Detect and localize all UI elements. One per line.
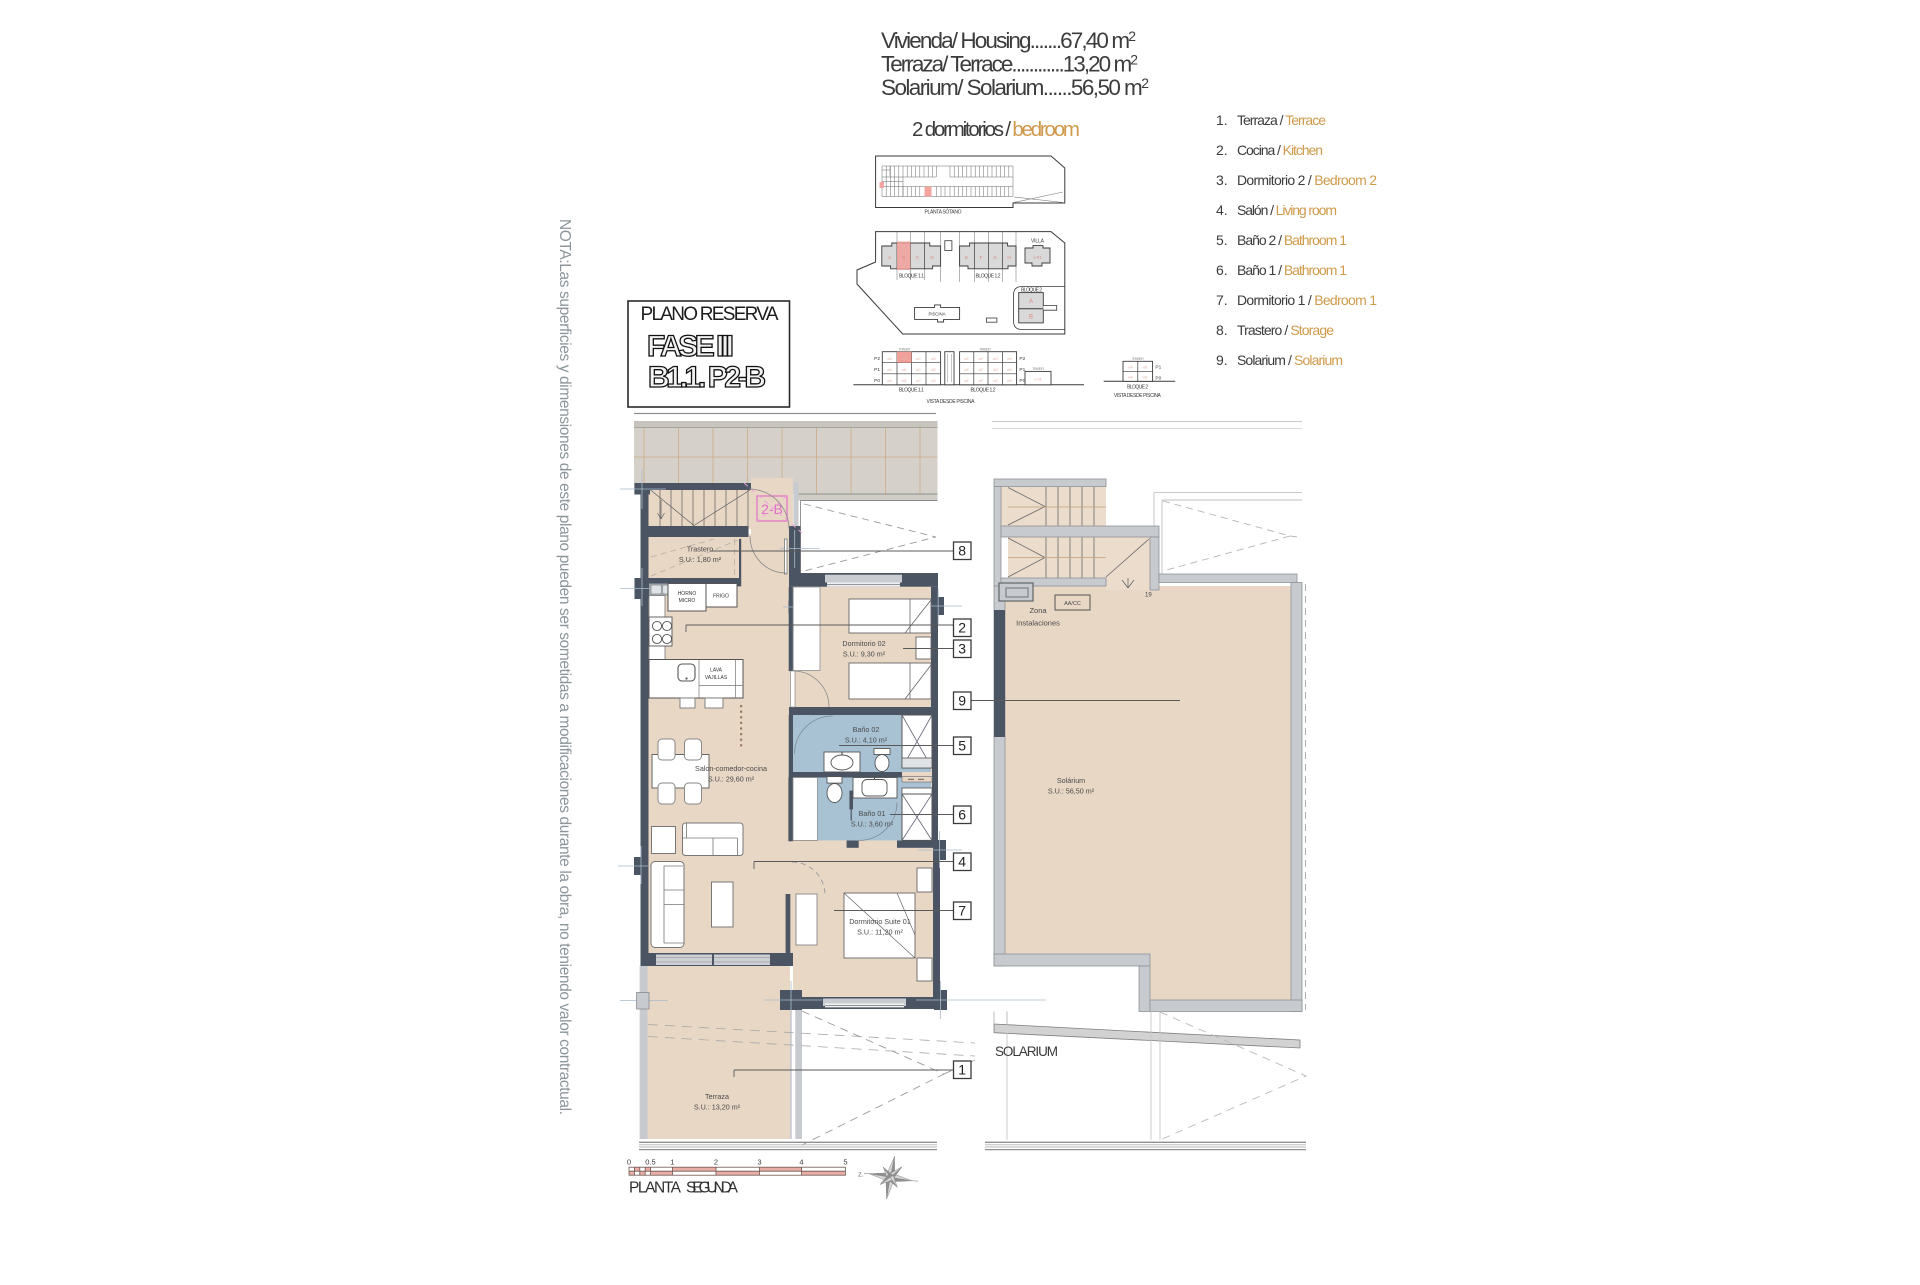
- svg-text:2: 2: [958, 620, 966, 636]
- svg-text:S.U.: 9,30 m²: S.U.: 9,30 m²: [843, 650, 886, 659]
- svg-text:z.: z.: [858, 1170, 864, 1179]
- svg-text:TRASER: TRASER: [979, 347, 991, 352]
- svg-text:P1: P1: [874, 367, 880, 373]
- svg-text:1: 1: [670, 1158, 674, 1167]
- svg-text:Dormitorio 02: Dormitorio 02: [842, 639, 885, 648]
- svg-text:Baño 02: Baño 02: [853, 725, 880, 734]
- svg-text:4: 4: [958, 854, 966, 870]
- svg-text:VISTA DESDE PISCINA: VISTA DESDE PISCINA: [1114, 393, 1162, 399]
- svg-text:0.5: 0.5: [645, 1158, 655, 1167]
- svg-text:7: 7: [958, 903, 966, 919]
- svg-text:19: 19: [1145, 593, 1152, 599]
- svg-text:wE: wE: [964, 379, 969, 383]
- svg-text:8: 8: [958, 543, 966, 559]
- svg-text:wH: wH: [1007, 368, 1012, 372]
- svg-text:FASE III: FASE III: [647, 330, 734, 363]
- svg-text:Solárium: Solárium: [1057, 776, 1085, 785]
- svg-text:wA: wA: [887, 357, 892, 361]
- svg-text:wF: wF: [979, 357, 984, 361]
- svg-text:BLOQUE 1.2: BLOQUE 1.2: [976, 274, 1001, 280]
- svg-text:wB: wB: [1143, 366, 1148, 370]
- svg-text:wG: wG: [993, 357, 998, 361]
- svg-text:3: 3: [757, 1158, 761, 1167]
- svg-text:FRIGO: FRIGO: [713, 594, 729, 600]
- svg-text:wD: wD: [931, 379, 936, 383]
- svg-text:PLANTA: PLANTA: [629, 1180, 682, 1197]
- svg-text:S.U.: 29,60 m²: S.U.: 29,60 m²: [708, 775, 755, 784]
- svg-text:Zona: Zona: [1029, 606, 1047, 615]
- svg-text:A: A: [1029, 299, 1033, 305]
- svg-text:Baño 2 / Bathroom 1: Baño 2 / Bathroom 1: [1237, 232, 1347, 248]
- svg-text:wG: wG: [993, 379, 998, 383]
- svg-text:Solarium / Solarium: Solarium / Solarium: [1237, 352, 1343, 368]
- svg-text:Terraza / Terrace: Terraza / Terrace: [1237, 112, 1326, 128]
- svg-text:Dormitorio 2 / Bedroom 2: Dormitorio 2 / Bedroom 2: [1237, 172, 1377, 188]
- svg-text:BLOQUE 1.2: BLOQUE 1.2: [971, 388, 996, 394]
- svg-text:SOLARIUM: SOLARIUM: [995, 1044, 1058, 1059]
- svg-text:TRASER: TRASER: [1132, 356, 1144, 361]
- svg-text:wB: wB: [902, 379, 907, 383]
- svg-text:Instalaciones: Instalaciones: [1016, 619, 1060, 628]
- svg-text:VILLA: VILLA: [1031, 239, 1045, 245]
- svg-text:wE: wE: [964, 368, 969, 372]
- svg-text:NOTA:Las superficies y dimensi: NOTA:Las superficies y dimensiones de es…: [556, 219, 573, 1115]
- svg-text:Terraza: Terraza: [705, 1092, 729, 1101]
- svg-text:G: G: [993, 255, 997, 260]
- svg-text:S.U.: 56,50 m²: S.U.: 56,50 m²: [1048, 787, 1095, 796]
- svg-text:wC: wC: [916, 379, 921, 383]
- svg-text:Salon-comedor-cocina: Salon-comedor-cocina: [695, 764, 767, 773]
- svg-text:MICRO: MICRO: [679, 598, 696, 604]
- svg-text:4.: 4.: [1216, 202, 1228, 218]
- svg-text:PLANO RESERVA: PLANO RESERVA: [641, 304, 779, 325]
- svg-text:wG: wG: [993, 368, 998, 372]
- svg-text:P0: P0: [874, 378, 880, 384]
- svg-text:Solarium/ Solarium......56,50: Solarium/ Solarium......56,50 m2: [881, 75, 1149, 100]
- svg-text:HORNO: HORNO: [678, 591, 697, 597]
- svg-text:9.: 9.: [1216, 352, 1228, 368]
- svg-text:Trastero: Trastero: [687, 545, 714, 554]
- svg-text:P1: P1: [1155, 365, 1161, 371]
- svg-text:Dormitorio Suite 01: Dormitorio Suite 01: [849, 917, 911, 926]
- svg-text:5: 5: [958, 738, 966, 754]
- svg-text:wF: wF: [979, 379, 984, 383]
- svg-text:wE: wE: [964, 357, 969, 361]
- svg-text:wA: wA: [887, 368, 892, 372]
- svg-text:3: 3: [958, 641, 966, 657]
- svg-text:6.: 6.: [1216, 262, 1228, 278]
- svg-text:wB: wB: [902, 357, 907, 361]
- svg-text:5.: 5.: [1216, 232, 1228, 248]
- svg-text:TRASER: TRASER: [899, 347, 911, 352]
- svg-text:9: 9: [958, 693, 966, 709]
- svg-text:PLANTA SÓTANO: PLANTA SÓTANO: [925, 209, 962, 216]
- svg-text:1: 1: [958, 1062, 966, 1078]
- svg-text:P0: P0: [1155, 376, 1161, 382]
- svg-text:PISCINA: PISCINA: [929, 312, 946, 317]
- svg-text:E: E: [965, 255, 968, 260]
- svg-text:F: F: [980, 255, 983, 260]
- svg-text:P2: P2: [1019, 356, 1025, 362]
- svg-text:wD: wD: [931, 357, 936, 361]
- svg-text:wA: wA: [887, 379, 892, 383]
- svg-text:VAJILLAS: VAJILLAS: [705, 675, 728, 681]
- svg-text:BLOQUE 1.1: BLOQUE 1.1: [899, 274, 924, 280]
- svg-text:P2: P2: [874, 356, 880, 362]
- svg-text:wC: wC: [916, 357, 921, 361]
- svg-text:1.: 1.: [1216, 112, 1228, 128]
- svg-text:6: 6: [958, 807, 966, 823]
- svg-text:VISTA DESDE PISCINA: VISTA DESDE PISCINA: [927, 399, 976, 405]
- svg-text:BLOQUE 1.1: BLOQUE 1.1: [899, 388, 924, 394]
- svg-text:S.U.: 11,20 m²: S.U.: 11,20 m²: [857, 928, 903, 937]
- svg-text:wA: wA: [1128, 366, 1133, 370]
- svg-text:wH: wH: [1007, 357, 1012, 361]
- svg-text:Trastero / Storage: Trastero / Storage: [1237, 322, 1334, 338]
- svg-text:SEGUNDA: SEGUNDA: [686, 1180, 739, 1197]
- svg-text:Salón / Living room: Salón / Living room: [1237, 202, 1337, 218]
- svg-text:S.U.: 1,80 m²: S.U.: 1,80 m²: [679, 555, 722, 564]
- svg-text:3.: 3.: [1216, 172, 1228, 188]
- svg-text:2 dormitorios / bedroom: 2 dormitorios / bedroom: [912, 118, 1080, 141]
- svg-text:wB: wB: [902, 368, 907, 372]
- svg-text:Terraza/ Terrace............13: Terraza/ Terrace............13,20 m2: [881, 52, 1138, 77]
- svg-text:Baño 1 / Bathroom 1: Baño 1 / Bathroom 1: [1237, 262, 1347, 278]
- svg-text:BLOQUE 2: BLOQUE 2: [1127, 385, 1148, 391]
- svg-text:B: B: [902, 255, 905, 260]
- svg-text:v-01: v-01: [1034, 377, 1043, 382]
- svg-text:Vivienda/ Housing.......67,40: Vivienda/ Housing.......67,40 m2: [881, 28, 1136, 53]
- svg-text:B1.1. P2-B: B1.1. P2-B: [648, 361, 766, 394]
- svg-text:4: 4: [799, 1158, 803, 1167]
- svg-text:wF: wF: [979, 368, 984, 372]
- svg-text:Cocina / Kitchen: Cocina / Kitchen: [1237, 142, 1323, 158]
- svg-text:0: 0: [627, 1158, 631, 1167]
- svg-text:v-01: v-01: [1033, 255, 1042, 260]
- svg-text:wD: wD: [931, 368, 936, 372]
- svg-text:wA: wA: [1128, 376, 1133, 380]
- svg-text:TRASER: TRASER: [1032, 366, 1044, 371]
- svg-text:AA/CC: AA/CC: [1064, 601, 1081, 607]
- svg-text:S.U.: 3,60 m²: S.U.: 3,60 m²: [851, 820, 894, 829]
- svg-text:2.: 2.: [1216, 142, 1228, 158]
- svg-text:LAVA: LAVA: [710, 668, 723, 674]
- svg-text:wB: wB: [1143, 376, 1148, 380]
- svg-text:wC: wC: [916, 368, 921, 372]
- svg-text:wH: wH: [1007, 379, 1012, 383]
- svg-text:S.U.: 13,20 m²: S.U.: 13,20 m²: [694, 1103, 741, 1112]
- svg-text:8.: 8.: [1216, 322, 1228, 338]
- svg-text:Baño 01: Baño 01: [859, 809, 886, 818]
- svg-text:H: H: [1007, 255, 1010, 260]
- svg-text:Dormitorio 1 / Bedroom 1: Dormitorio 1 / Bedroom 1: [1237, 292, 1377, 308]
- svg-text:2: 2: [714, 1158, 718, 1167]
- svg-text:5: 5: [843, 1158, 847, 1167]
- svg-text:7.: 7.: [1216, 292, 1228, 308]
- svg-text:B: B: [1029, 315, 1033, 321]
- svg-text:S.U.: 4,10 m²: S.U.: 4,10 m²: [845, 736, 888, 745]
